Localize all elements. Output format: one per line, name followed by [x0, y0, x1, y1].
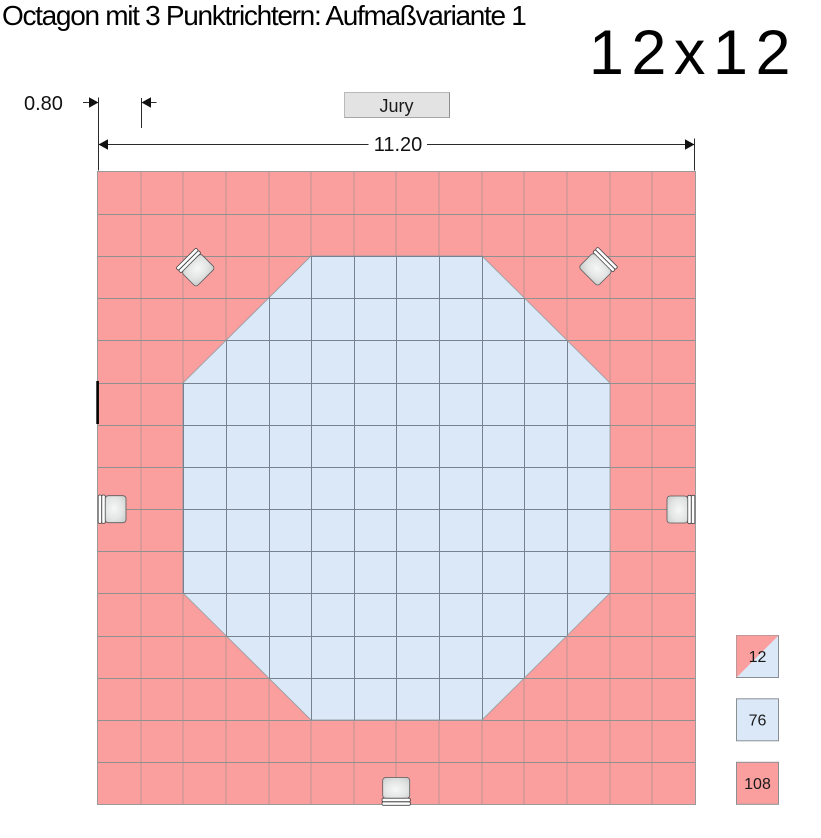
svg-text:108: 108	[744, 776, 771, 793]
svg-text:76: 76	[749, 712, 767, 729]
svg-text:11.20: 11.20	[374, 134, 423, 156]
svg-text:0.80: 0.80	[24, 93, 63, 115]
svg-text:12: 12	[749, 649, 767, 666]
